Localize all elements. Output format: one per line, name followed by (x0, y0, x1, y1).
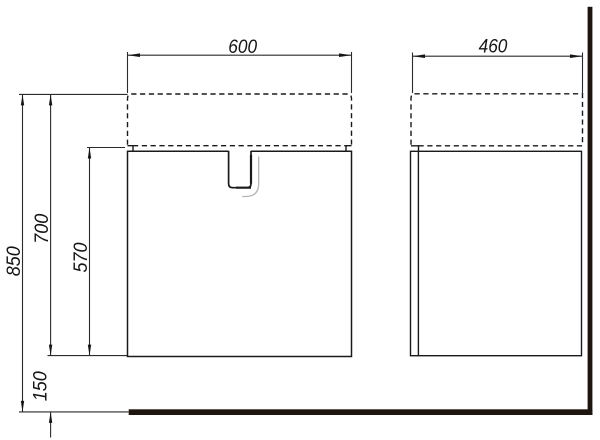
svg-text:600: 600 (228, 36, 257, 58)
svg-text:850: 850 (3, 246, 25, 276)
svg-text:460: 460 (479, 36, 508, 58)
svg-text:570: 570 (70, 242, 92, 272)
svg-text:150: 150 (29, 371, 51, 401)
svg-text:700: 700 (31, 214, 53, 244)
